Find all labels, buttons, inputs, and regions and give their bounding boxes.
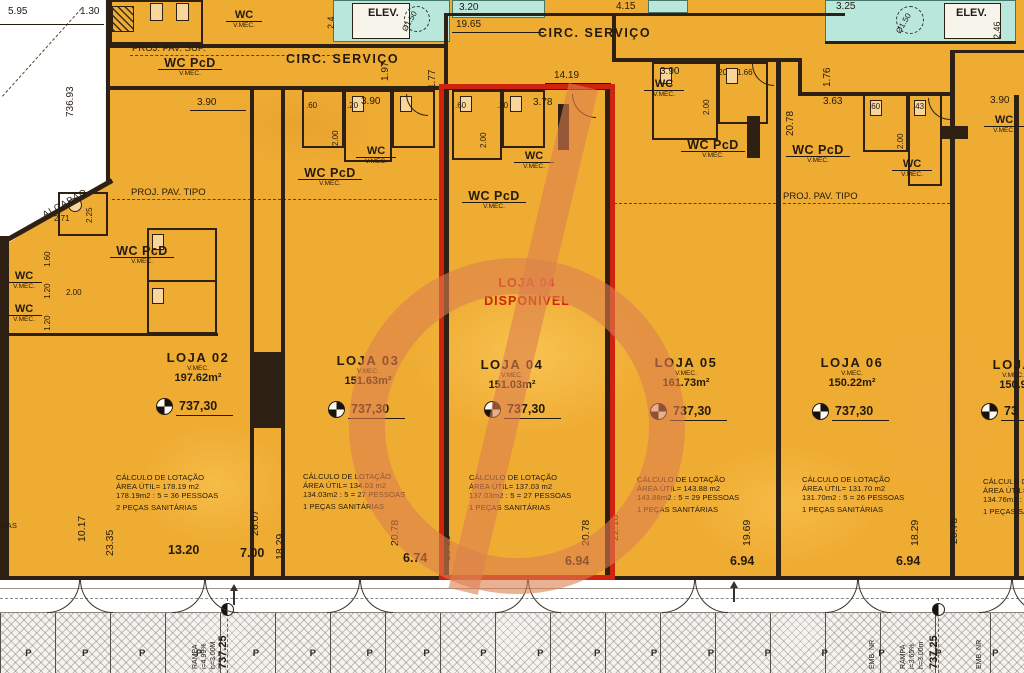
dim-label: 14.19 <box>554 70 579 81</box>
proj-pav-tipo-label: PROJ. PAV. TIPO <box>131 187 206 198</box>
wall <box>776 60 781 578</box>
parking-space-marker: P <box>765 648 771 659</box>
wc-pcd-text: WC PcD <box>110 245 174 258</box>
dim-label: 3.90 <box>990 95 1009 106</box>
parking-space-marker: P <box>594 648 600 659</box>
calc-line: CÁLCULO DE LOTAÇÃO <box>802 475 904 484</box>
calc-line: 1 PEÇAS SANITÁRIAS <box>637 505 739 514</box>
benchmark-icon <box>156 398 173 415</box>
calc-line: 1 PEÇAS SANITÁRIAS <box>303 502 405 511</box>
dim-label: 2.46 <box>992 21 1002 39</box>
wc-text: WC <box>984 114 1024 127</box>
wall <box>825 41 1016 44</box>
vmec-text: V.MEC. <box>6 283 42 291</box>
calc-block-loja-05: CÁLCULO DE LOTAÇÃOÁREA ÚTIL= 143.88 m214… <box>637 475 739 514</box>
store-label-loja-02: LOJA 02V.MEC.197.62m² <box>152 351 244 385</box>
shaft-fill <box>254 352 281 428</box>
ramp-slope-label: i=4.99% <box>201 644 208 670</box>
benchmark-icon <box>981 403 998 420</box>
wall <box>614 58 802 62</box>
vmec-text: V.MEC. <box>110 258 174 266</box>
dim-label: 6.74 <box>403 551 427 565</box>
parking-space-marker: P <box>822 648 828 659</box>
parking-space-marker: P <box>992 648 998 659</box>
calc-line: CÁLCULO DE LOTAÇÃO <box>116 473 218 482</box>
dashed-line <box>112 199 442 200</box>
door-swing-arc <box>327 580 360 613</box>
store-label-loja-07: LOJAV.MEC.150.9 <box>978 358 1024 392</box>
vmec-text: V.MEC. <box>6 316 42 324</box>
proj-pav-tipo-label: PROJ. PAV. TIPO <box>783 191 858 202</box>
store-name: LOJA 06 <box>806 356 898 370</box>
level-marker: 737,30 <box>328 401 405 419</box>
elevator-label: ELEV. <box>368 7 399 19</box>
vmec-text: V.MEC. <box>681 152 745 160</box>
level-value: 737,30 <box>670 403 727 421</box>
wc-pcd-text: WC PcD <box>158 57 222 70</box>
dim-label: 3.20 <box>459 2 478 13</box>
toilet-fixture <box>152 288 164 304</box>
calc-line: 1 PEÇAS SANITÁRIAS <box>802 505 904 514</box>
door-swing-arc <box>495 580 528 613</box>
door-swing-arc <box>47 580 80 613</box>
vmec-text: V.MEC. <box>298 180 362 188</box>
parking-space-marker: P <box>537 648 543 659</box>
calc-line: CÁLCULO DE LOTAÇÃO <box>303 472 405 481</box>
door-swing-arc <box>695 580 728 613</box>
dimension-line <box>190 110 246 111</box>
site-benchmark-icon <box>932 603 945 616</box>
rampa-label: RAMPA <box>192 645 199 669</box>
site-level-label: 737.25 <box>928 635 940 669</box>
wc-pcd-label: WC PcDV.MEC. <box>786 144 850 165</box>
level-value: 737,30 <box>176 398 233 416</box>
ramp-height-label: h=3.00M <box>210 642 217 669</box>
parking-space-marker: P <box>310 648 316 659</box>
wall <box>448 13 845 16</box>
dim-label: 1.66 <box>737 68 753 77</box>
dim-label: 2.00 <box>66 288 82 297</box>
level-marker: 737,30 <box>156 398 233 416</box>
dim-label: 26.07 <box>249 510 261 536</box>
store-area: 150.22m² <box>806 377 898 390</box>
dim-label: 23.35 <box>104 530 116 556</box>
vmec-text: V.MEC. <box>640 370 732 377</box>
dim-label: 18.29 <box>909 520 921 546</box>
level-marker: 737,30 <box>650 403 727 421</box>
direction-arrow-stem <box>233 587 235 605</box>
wall <box>106 0 110 182</box>
service-room <box>648 0 688 13</box>
emb-nr-label: EMB. NR <box>869 640 876 669</box>
dim-label: 2.4 <box>326 16 336 29</box>
benchmark-icon <box>812 403 829 420</box>
floor-plan: 5.95 1.30 736.93 ALÇAPÃO 2.25 2.71 WC Pc… <box>0 0 1024 673</box>
wall <box>0 333 218 336</box>
dim-label: 1.77 <box>427 70 438 89</box>
store-name: LOJA 02 <box>152 351 244 365</box>
calc-block-loja-02: CÁLCULO DE LOTAÇÃOÁREA ÚTIL= 178.19 m217… <box>116 473 218 512</box>
dim-label: 7.00 <box>240 546 264 560</box>
calc-line: 2 PEÇAS SANITÁRIAS <box>116 503 218 512</box>
parking-space-marker: P <box>25 648 31 659</box>
door-swing-arc <box>172 580 205 613</box>
parking-space-marker: P <box>480 648 486 659</box>
calc-line: CÁLCULO DE LOTAÇÃO <box>983 477 1024 486</box>
wc-text: WC <box>644 78 684 91</box>
dim-label: 1.20 <box>43 283 52 299</box>
benchmark-icon <box>328 401 345 418</box>
store-area: 197.62m² <box>152 372 244 385</box>
store-name: LOJA 03 <box>322 354 414 368</box>
parking-space-marker: P <box>878 648 884 659</box>
wc-pcd-text: WC PcD <box>298 167 362 180</box>
benchmark-icon <box>650 403 667 420</box>
calc-line: 1 PEÇAS SANITÁRIAS <box>983 507 1024 516</box>
dim-label: 3.90 <box>197 97 216 108</box>
store-area: 161.73m² <box>640 377 732 390</box>
store-area: 151.63m² <box>322 375 414 388</box>
dashed-line <box>614 203 950 204</box>
calc-line: 134.76m2 : 5 = <box>983 495 1024 504</box>
duct-fill <box>942 126 968 139</box>
wc-pcd-text: WC PcD <box>786 144 850 157</box>
vmec-text: V.MEC. <box>806 370 898 377</box>
dim-label: 3.90 <box>660 66 679 77</box>
calc-block-loja-03: CÁLCULO DE LOTAÇÃOÁREA ÚTIL= 134.03 m213… <box>303 472 405 511</box>
calc-line: ÁREA ÚTIL= 131.70 m2 <box>802 484 904 493</box>
dim-label: 1.20 <box>43 315 52 331</box>
level-marker: 73 <box>981 403 1024 421</box>
door-swing-arc <box>528 580 561 613</box>
calc-line: ÁREA ÚTIL= 134.76 m2 <box>983 486 1024 495</box>
highlight-unit-name: LOJA 04 <box>441 276 613 290</box>
calc-line: ÁREA ÚTIL= 178.19 m2 <box>116 482 218 491</box>
dim-label: 10.17 <box>76 516 88 542</box>
level-value: 737,30 <box>348 401 405 419</box>
duct-fill <box>747 116 760 158</box>
available-unit-highlight[interactable] <box>439 84 615 580</box>
dim-label: 2.71 <box>54 214 70 223</box>
dim-label: .20 <box>716 68 727 77</box>
dim-label: 3.90 <box>361 96 380 107</box>
calc-line: 178.19m2 : 5 = 36 PESSOAS <box>116 491 218 500</box>
benchmark-label: 736.93 <box>65 86 76 117</box>
emb-nr-label: EMB. NR <box>976 640 983 669</box>
wc-text: WC <box>226 9 262 22</box>
dim-label: .60 <box>869 102 880 111</box>
calc-line: 131.70m2 : 5 = 26 PESSOAS <box>802 493 904 502</box>
wc-pcd-label: WC PcDV.MEC. <box>110 245 174 266</box>
door-swing-arc <box>858 580 891 613</box>
vmec-text: V.MEC. <box>892 171 932 179</box>
store-label-loja-03: LOJA 03V.MEC.151.63m² <box>322 354 414 388</box>
elevator-label: ELEV. <box>956 7 987 19</box>
dim-label: 19.69 <box>741 520 753 546</box>
calc-line: 134.03m2 : 5 = 27 PESSOAS <box>303 490 405 499</box>
store-name: LOJA 05 <box>640 356 732 370</box>
dim-label: .60 <box>306 101 317 110</box>
dim-label: 6.94 <box>730 554 754 568</box>
dim-label: 2.00 <box>702 99 711 115</box>
proj-pav-sup-label: PROJ. PAV. SUP. <box>132 43 206 54</box>
level-value: 737,30 <box>832 403 889 421</box>
dim-label: 19.65 <box>456 19 481 30</box>
door-swing-arc <box>80 580 113 613</box>
ramp-height-label: h=3.00m <box>918 642 925 669</box>
site-level-label: 737.25 <box>217 635 229 669</box>
parking-space-marker: P <box>651 648 657 659</box>
dim-label: 20.78 <box>785 111 796 136</box>
dim-label: 18.29 <box>274 534 286 560</box>
level-value: 73 <box>1001 403 1024 421</box>
parking-space-marker: P <box>82 648 88 659</box>
dim-label: 5.95 <box>8 6 27 17</box>
wc-text: WC <box>356 145 396 158</box>
wc-text: WC <box>6 303 42 316</box>
calc-block-loja-07: CÁLCULO DE LOTAÇÃOÁREA ÚTIL= 134.76 m213… <box>983 477 1024 516</box>
parking-space-marker: P <box>367 648 373 659</box>
highlight-status: DISPONÍVEL <box>441 294 613 308</box>
dim-label: 3.63 <box>823 96 842 107</box>
dim-label: 1.30 <box>80 6 99 17</box>
ramp-slope-label: i=3.65% <box>909 644 916 670</box>
wall <box>250 88 254 578</box>
parking-space-marker: P <box>139 648 145 659</box>
store-name: LOJA <box>978 358 1024 372</box>
dim-label: 6.94 <box>896 554 920 568</box>
dim-label: 1.97 <box>380 62 391 81</box>
store-area: 150.9 <box>978 379 1024 392</box>
dim-label: 2.25 <box>85 207 94 223</box>
wc-pcd-label: WC PcDV.MEC. <box>298 167 362 188</box>
vmec-text: V.MEC. <box>158 70 222 78</box>
wc-label: WCV.MEC. <box>6 270 42 291</box>
dim-label: 20.78 <box>389 520 401 546</box>
door-swing-arc <box>662 580 695 613</box>
wc-label: WCV.MEC. <box>892 158 932 179</box>
wc-pcd-text: WC PcD <box>681 139 745 152</box>
dim-label: .20 <box>347 101 358 110</box>
vmec-text: V.MEC. <box>786 157 850 165</box>
wc-text: WC <box>892 158 932 171</box>
vmec-text: V.MEC. <box>226 22 262 30</box>
wc-pcd-label: WC PcDV.MEC. <box>158 57 222 78</box>
calc-block-loja-06: CÁLCULO DE LOTAÇÃOÁREA ÚTIL= 131.70 m213… <box>802 475 904 514</box>
dim-label: 2.00 <box>331 130 340 146</box>
store-label-loja-06: LOJA 06V.MEC.150.22m² <box>806 356 898 390</box>
dim-label: 4.15 <box>616 1 635 12</box>
door-swing-arc <box>1012 580 1024 613</box>
wc-pcd-label: WC PcDV.MEC. <box>681 139 745 160</box>
toilet-fixture <box>176 3 189 21</box>
calc-line: CÁLCULO DE LOTAÇÃO <box>637 475 739 484</box>
calc-line: ÁREA ÚTIL= 143.88 m2 <box>637 484 739 493</box>
calc-line-partial: PESSOAS <box>0 521 17 530</box>
wc-label: WCV.MEC. <box>356 145 396 166</box>
parking-space-marker: P <box>253 648 259 659</box>
wall <box>147 280 217 282</box>
shaft-hatch <box>112 6 134 32</box>
wc-label: WCV.MEC. <box>984 114 1024 135</box>
direction-arrow-stem <box>733 584 735 602</box>
toilet-fixture <box>150 3 163 21</box>
dim-label: 20.78 <box>948 518 960 544</box>
wc-text: WC <box>6 270 42 283</box>
parking-space-marker: P <box>423 648 429 659</box>
door-swing-arc <box>360 580 393 613</box>
wall <box>281 88 285 578</box>
store-label-loja-05: LOJA 05V.MEC.161.73m² <box>640 356 732 390</box>
vmec-text: V.MEC. <box>356 158 396 166</box>
dim-label: .43 <box>913 102 924 111</box>
dim-label: 1.76 <box>822 68 833 87</box>
level-marker: 737,30 <box>812 403 889 421</box>
wc-label: WCV.MEC. <box>6 303 42 324</box>
dim-label: 3.25 <box>836 1 855 12</box>
wc-label: WCV.MEC. <box>226 9 262 30</box>
circ-servico-label: CIRC. SERVIÇO <box>538 26 651 40</box>
dim-label: 1.60 <box>43 251 52 267</box>
door-swing-arc <box>825 580 858 613</box>
wall <box>798 58 802 96</box>
vmec-text: V.MEC. <box>152 365 244 372</box>
calc-line: ÁREA ÚTIL= 134.03 m2 <box>303 481 405 490</box>
calc-line: 143.88m2 : 5 = 29 PESSOAS <box>637 493 739 502</box>
wc-label: WCV.MEC. <box>644 78 684 99</box>
wall <box>950 50 1024 53</box>
vmec-text: V.MEC. <box>644 91 684 99</box>
dimension-line <box>452 32 544 33</box>
vmec-text: V.MEC. <box>322 368 414 375</box>
dim-label: 13.20 <box>168 543 199 557</box>
parking-space-marker: P <box>708 648 714 659</box>
door-swing-arc <box>979 580 1012 613</box>
vmec-text: V.MEC. <box>984 127 1024 135</box>
dimension-line <box>0 24 104 25</box>
vmec-text: V.MEC. <box>978 372 1024 379</box>
dim-label: 2.00 <box>896 133 905 149</box>
wall <box>444 13 448 88</box>
rampa-label: RAMPA <box>900 645 907 669</box>
